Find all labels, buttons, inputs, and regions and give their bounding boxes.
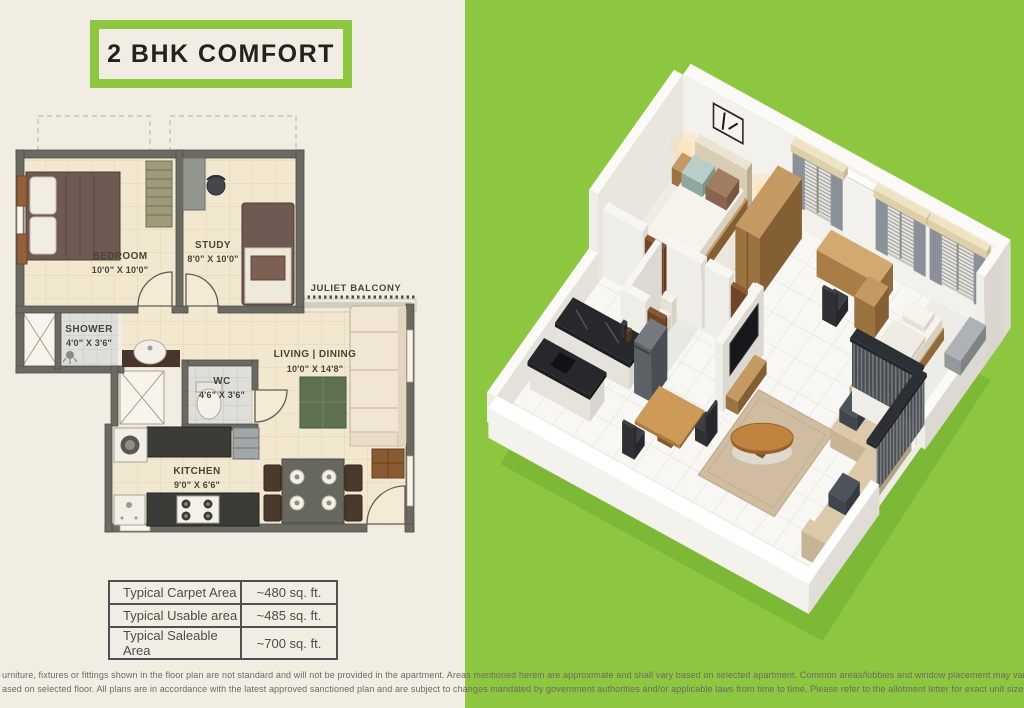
- room-dims-wc: 4'6" X 3'6": [199, 390, 245, 400]
- dining-set: [264, 459, 362, 523]
- room-dims-bedroom: 10'0" X 10'0": [92, 265, 148, 275]
- page-title: 2 BHK COMFORT: [107, 40, 335, 69]
- room-dims-shower: 4'0" X 3'6": [66, 338, 112, 348]
- room-label-study: STUDY: [195, 240, 231, 251]
- ottoman: [372, 449, 404, 478]
- area-value: ~480 sq. ft.: [241, 581, 337, 604]
- area-value: ~485 sq. ft.: [241, 604, 337, 627]
- room-dims-kitchen: 9'0" X 6'6": [174, 480, 220, 490]
- room-label-wc: WC: [213, 376, 230, 387]
- area-label: Typical Usable area: [109, 604, 241, 627]
- area-label: Typical Carpet Area: [109, 581, 241, 604]
- brochure-page: BEDROOM 10'0" X 10'0" STUDY 8'0" X 10'0"…: [0, 0, 1024, 708]
- juliet-balcony-label: JULIET BALCONY: [311, 283, 402, 294]
- room-label-bedroom: BEDROOM: [92, 251, 147, 262]
- study-bed: [242, 203, 294, 305]
- sofa: [350, 306, 406, 446]
- wardrobe: [146, 161, 172, 227]
- area-label: Typical Saleable Area: [109, 627, 241, 659]
- room-dims-study: 8'0" X 10'0": [187, 254, 238, 264]
- title-badge: 2 BHK COMFORT: [90, 20, 352, 88]
- area-table: Typical Carpet Area ~480 sq. ft. Typical…: [108, 580, 338, 660]
- toilet: [196, 382, 222, 419]
- room-label-living-dining: LIVING | DINING: [274, 349, 357, 360]
- area-value: ~700 sq. ft.: [241, 627, 337, 659]
- room-label-kitchen: KITCHEN: [173, 466, 220, 477]
- room-dims-living-dining: 10'0" X 14'8": [287, 364, 343, 374]
- room-label-shower: SHOWER: [65, 324, 113, 335]
- table-row: Typical Usable area ~485 sq. ft.: [109, 604, 337, 627]
- rug: [300, 377, 346, 428]
- disclaimer-line-1: urniture, fixtures or fittings shown in …: [2, 670, 1024, 680]
- table-row: Typical Saleable Area ~700 sq. ft.: [109, 627, 337, 659]
- disclaimer-line-2: ased on selected floor. All plans are in…: [2, 684, 1024, 694]
- table-row: Typical Carpet Area ~480 sq. ft.: [109, 581, 337, 604]
- void-dashed-outlines: [38, 116, 296, 152]
